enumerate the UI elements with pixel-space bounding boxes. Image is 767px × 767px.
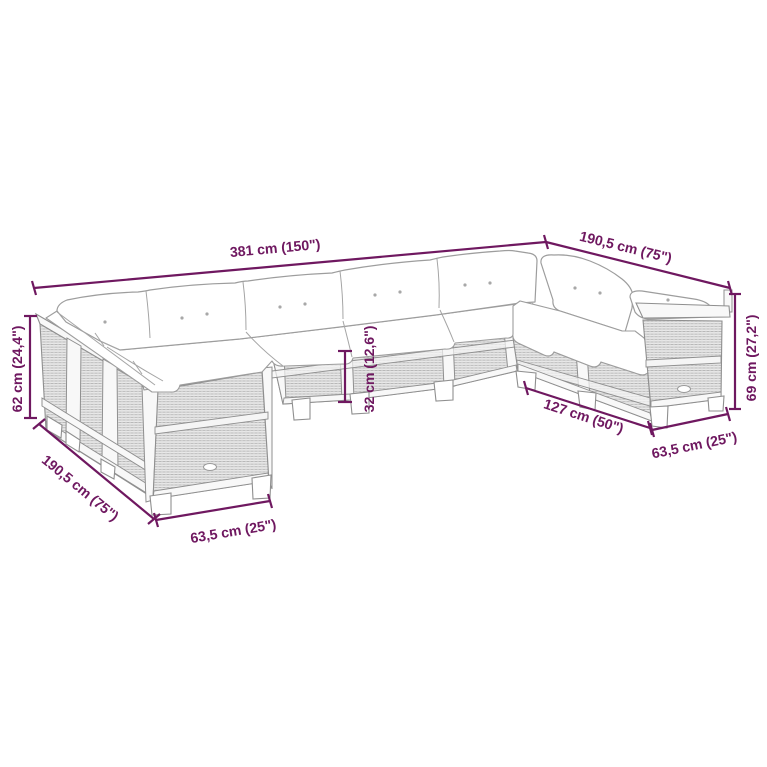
svg-text:62 cm (24,4"): 62 cm (24,4") bbox=[10, 325, 26, 412]
svg-text:69 cm (27,2"): 69 cm (27,2") bbox=[744, 314, 760, 401]
svg-text:32 cm (12,6"): 32 cm (12,6") bbox=[362, 325, 378, 412]
